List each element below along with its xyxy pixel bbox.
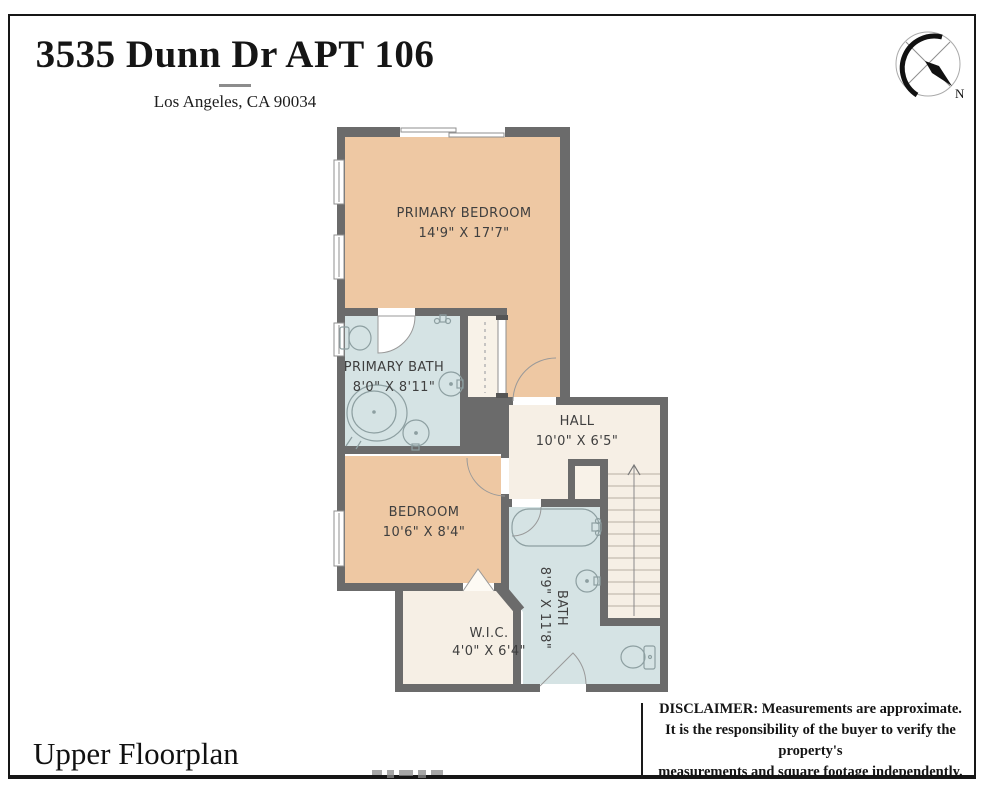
disclaimer-box: DISCLAIMER: Measurements are approximate…: [641, 703, 978, 779]
primary-bedroom-door-opening: [513, 397, 556, 405]
wall-primary-bath-top: [337, 308, 507, 316]
sliding-window-panel: [449, 133, 504, 137]
watermark-mark: [372, 770, 382, 775]
bath-label: BATH: [554, 590, 569, 626]
bath-door-opening: [512, 499, 541, 507]
wall-wic-left: [395, 583, 403, 692]
compass-north-label: N: [955, 86, 965, 101]
bedroom-door-opening: [501, 458, 509, 494]
disclaimer-line-3: measurements and square footage independ…: [643, 762, 978, 783]
closet-floor: [468, 316, 498, 397]
sliding-window-panel: [401, 128, 456, 132]
compass-rose-icon: N: [892, 26, 972, 112]
compass-needle-icon: [925, 61, 952, 86]
wall-bottom: [395, 684, 668, 692]
sink-drain: [586, 580, 589, 583]
closet-sliding-door: [498, 316, 506, 397]
disclaimer-line-2: It is the responsibility of the buyer to…: [643, 720, 978, 762]
sink-drain: [450, 383, 453, 386]
title-divider: [219, 84, 251, 87]
wall-stairs-bottom: [600, 618, 668, 626]
wall-right-lower: [660, 397, 668, 692]
bedroom-label: BEDROOM: [389, 505, 460, 520]
closet-door-track: [496, 393, 508, 398]
closet-door-track: [496, 315, 508, 320]
watermark-mark: [418, 770, 426, 778]
floorplan-drawing: PRIMARY BEDROOM 14'9" X 17'7" PRIMARY BA…: [330, 120, 675, 700]
watermark-mark: [431, 770, 443, 775]
wic-dims: 4'0" X 6'4": [452, 644, 526, 659]
watermark-mark: [399, 770, 413, 776]
page-subtitle: Los Angeles, CA 90034: [0, 92, 470, 112]
primary-bedroom-label: PRIMARY BEDROOM: [397, 206, 532, 221]
sink-drain: [415, 432, 418, 435]
bath-entry-door-opening: [540, 684, 586, 692]
header: 3535 Dunn Dr APT 106 Los Angeles, CA 900…: [0, 0, 470, 112]
wall-stairs-left: [600, 460, 608, 626]
sliding-window-top: [400, 127, 505, 137]
hall-nook-floor: [575, 466, 600, 499]
wic-label: W.I.C.: [469, 626, 508, 641]
hall-dims: 10'0" X 6'5": [536, 434, 618, 449]
wall-nook-left: [568, 459, 575, 506]
tub-drain: [373, 411, 375, 413]
floorplan-page: 3535 Dunn Dr APT 106 Los Angeles, CA 900…: [0, 0, 990, 794]
page-title: 3535 Dunn Dr APT 106: [0, 34, 470, 77]
watermark-remnant: [372, 770, 443, 778]
plan-level-label: Upper Floorplan: [33, 736, 239, 772]
bath-dims: 8'9" X 11'8": [537, 567, 552, 649]
wall-bedroom-top: [337, 446, 509, 454]
watermark-mark: [387, 770, 394, 778]
primary-bath-dims: 8'0" X 8'11": [353, 380, 435, 395]
hall-label: HALL: [560, 414, 595, 429]
primary-bath-label: PRIMARY BATH: [344, 360, 444, 375]
primary-bedroom-dims: 14'9" X 17'7": [418, 226, 509, 241]
disclaimer-text: DISCLAIMER: Measurements are approximate…: [643, 699, 978, 783]
disclaimer-line-1: DISCLAIMER: Measurements are approximate…: [643, 699, 978, 720]
bedroom-dims: 10'6" X 8'4": [383, 525, 465, 540]
wall-right-upper: [560, 127, 570, 405]
primary-bath-door-opening: [378, 308, 415, 316]
